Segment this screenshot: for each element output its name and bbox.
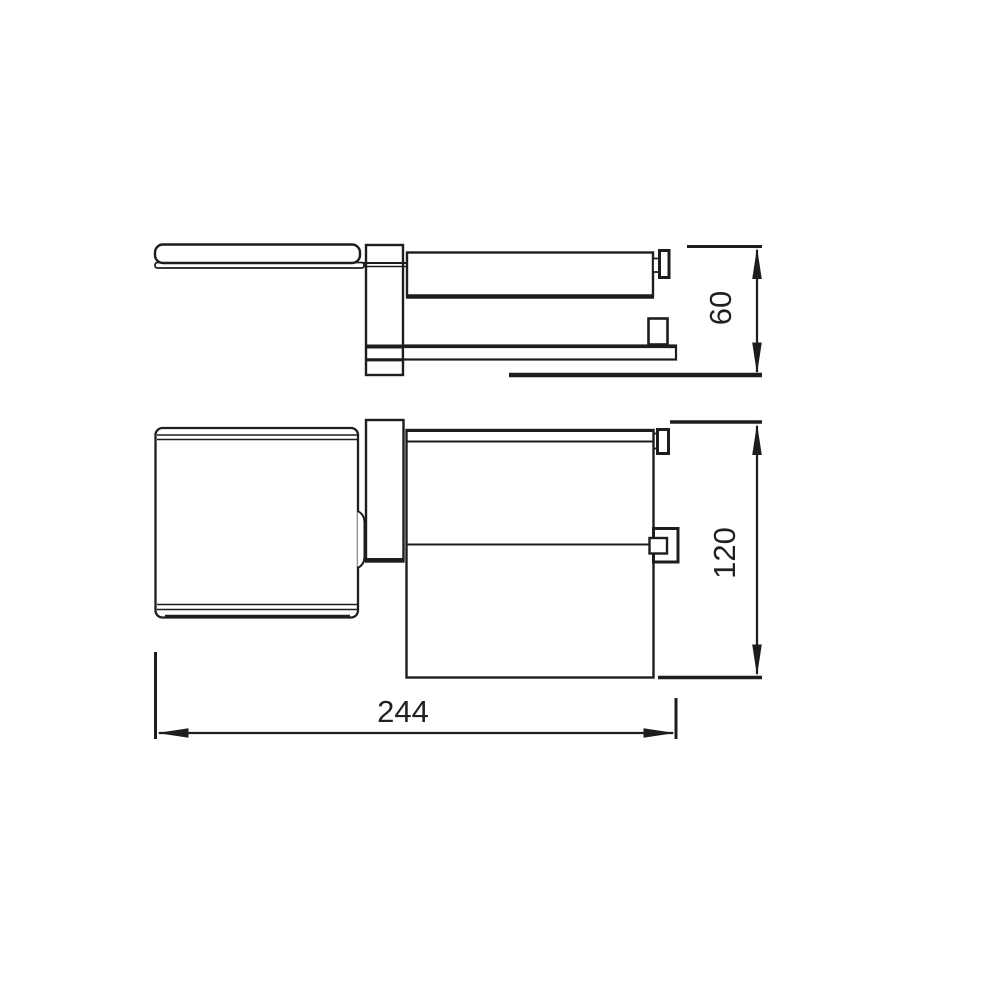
technical-drawing-canvas: 60 [0,0,1000,1000]
cover-body [156,428,359,618]
dimension-label-120: 120 [707,527,742,579]
arrowhead-left-244 [157,728,189,738]
arrowhead-up [752,248,762,280]
arrowhead-down-120 [752,645,762,677]
arrowhead-down [752,343,762,375]
flap-lid [155,245,360,264]
roll-bar-end-cap [660,251,670,278]
arrowhead-up-120 [752,424,762,456]
arrowhead-right-244 [644,728,676,738]
cover-hinge-bump [358,511,365,568]
mounting-bracket [366,245,403,375]
drawing-page: 60 [0,0,1000,1000]
dimension-label-244: 244 [377,694,429,729]
side-view [155,245,762,376]
housing-clip-inner [650,538,668,554]
dimension-label-60: 60 [703,291,738,325]
front-view [156,420,679,678]
housing-end-cap [658,430,669,454]
dimension-upper-height: 60 [687,247,762,375]
rail-clip [649,319,668,345]
roll-bar [407,253,653,297]
mounting-bracket-front [366,420,404,562]
roll-housing [407,430,654,678]
